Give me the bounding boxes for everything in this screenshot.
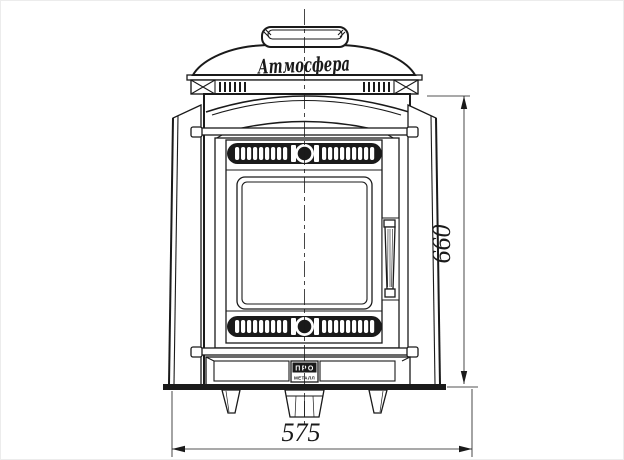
flue-collar (262, 27, 348, 47)
badge-top-label: ПРО (295, 366, 315, 373)
arrow-up-icon (461, 96, 467, 109)
arrow-right-icon (459, 446, 472, 452)
convection-wing-left (169, 105, 201, 385)
leg-right (369, 390, 387, 413)
dome-top: Атмосфера (193, 44, 415, 79)
door-handle[interactable] (382, 218, 399, 300)
arrow-left-icon (172, 446, 185, 452)
brand-script-logo: Атмосфера (256, 51, 350, 78)
leg-left (222, 390, 240, 413)
stove-technical-drawing: Атмосфера (0, 0, 624, 460)
width-dimension-label: 575 (282, 418, 321, 447)
arrow-down-icon (461, 371, 467, 384)
base-band: ПРО МЕТАЛЛ (206, 357, 410, 385)
height-dimension-label: 660 (427, 225, 456, 264)
front-view-drawing: Атмосфера (1, 1, 624, 460)
